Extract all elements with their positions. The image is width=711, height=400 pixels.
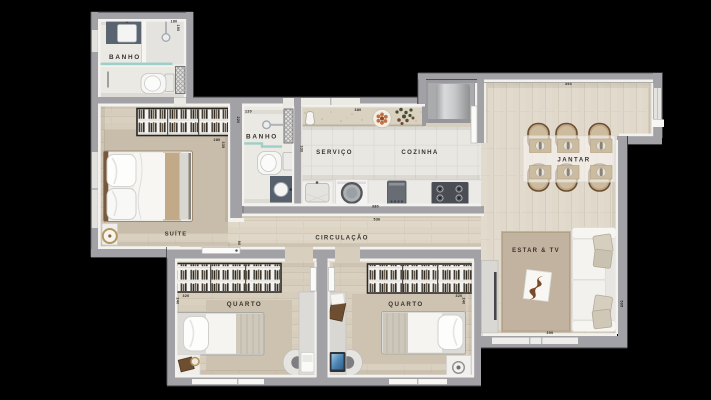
- svg-text:320: 320: [456, 294, 463, 298]
- svg-text:BANHO: BANHO: [109, 54, 141, 61]
- svg-text:380: 380: [372, 205, 379, 209]
- svg-text:380: 380: [355, 108, 362, 112]
- svg-text:180: 180: [171, 20, 178, 24]
- svg-text:120: 120: [245, 109, 252, 113]
- svg-text:JANTAR: JANTAR: [557, 156, 590, 163]
- svg-text:QUARTO: QUARTO: [388, 301, 423, 308]
- svg-text:300: 300: [547, 331, 554, 335]
- svg-text:COZINHA: COZINHA: [401, 149, 438, 156]
- svg-text:SERVIÇO: SERVIÇO: [316, 149, 353, 156]
- svg-text:240: 240: [462, 298, 466, 305]
- svg-text:335: 335: [221, 142, 225, 149]
- svg-text:330: 330: [300, 146, 304, 153]
- svg-text:190: 190: [176, 25, 180, 32]
- svg-text:QUARTO: QUARTO: [227, 301, 262, 308]
- svg-text:240: 240: [176, 298, 180, 305]
- svg-text:595: 595: [620, 301, 624, 308]
- svg-text:ESTAR & TV: ESTAR & TV: [512, 248, 560, 254]
- svg-text:SUÍTE: SUÍTE: [165, 229, 188, 237]
- svg-text:280: 280: [214, 138, 221, 142]
- svg-text:220: 220: [236, 117, 240, 124]
- svg-text:536: 536: [374, 217, 381, 221]
- svg-text:BANHO: BANHO: [246, 133, 278, 140]
- svg-text:CIRCULAÇÃO: CIRCULAÇÃO: [315, 235, 368, 242]
- svg-text:90: 90: [237, 241, 241, 246]
- svg-text:393: 393: [565, 82, 572, 86]
- svg-text:320: 320: [183, 294, 190, 298]
